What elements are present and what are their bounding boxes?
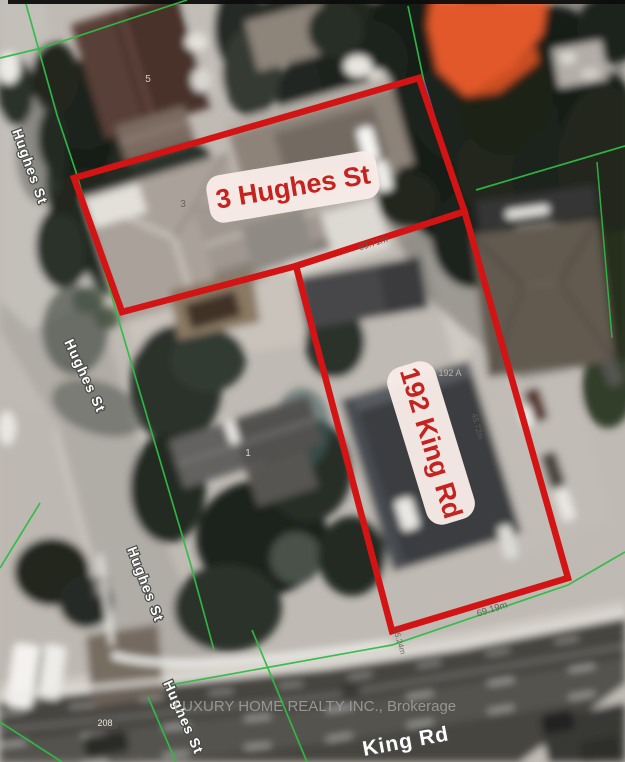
svg-text:LUXURY HOME REALTY INC., Broke: LUXURY HOME REALTY INC., Brokerage xyxy=(174,698,456,715)
svg-text:208: 208 xyxy=(97,718,112,728)
svg-text:3: 3 xyxy=(180,199,186,210)
svg-text:192 A: 192 A xyxy=(438,368,461,378)
svg-text:5: 5 xyxy=(145,74,151,85)
svg-text:1: 1 xyxy=(245,448,251,459)
